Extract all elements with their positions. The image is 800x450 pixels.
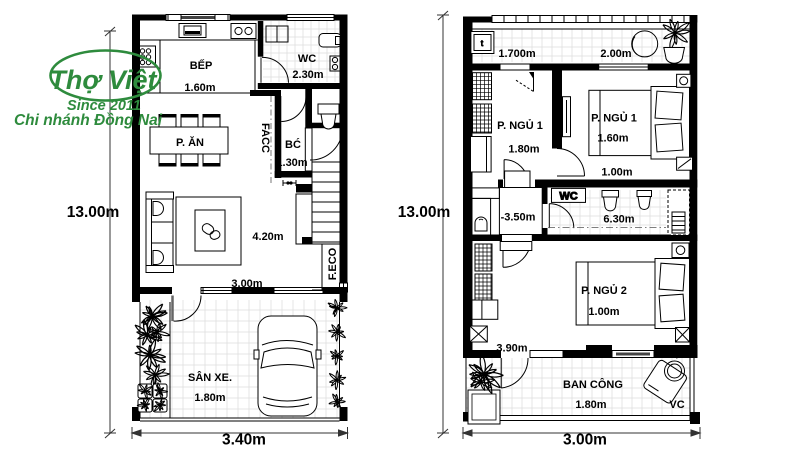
svg-text:Thợ Việt: Thợ Việt [49,65,157,95]
svg-text:1.60m: 1.60m [597,133,628,145]
svg-text:WC: WC [559,190,577,202]
svg-text:1.00m: 1.00m [601,167,632,179]
svg-text:P. ĂN: P. ĂN [176,136,204,149]
svg-text:F.ECO: F.ECO [327,247,339,280]
svg-text:6.30m: 6.30m [603,214,634,226]
svg-text:BĆ: BĆ [285,138,301,151]
svg-text:1.30m: 1.30m [276,157,307,169]
svg-text:WC: WC [298,53,316,65]
svg-text:SÂN XE.: SÂN XE. [188,371,232,384]
svg-text:1.700m: 1.700m [498,48,536,60]
svg-text:-3.50m: -3.50m [501,212,536,224]
svg-text:BAN CÔNG: BAN CÔNG [563,378,623,391]
svg-text:2.30m: 2.30m [292,69,323,81]
svg-text:P. NGỦ 1: P. NGỦ 1 [591,112,637,125]
svg-text:3.40m: 3.40m [222,432,266,449]
svg-text:P. NGỦ 2: P. NGỦ 2 [581,284,627,297]
svg-text:FACC: FACC [259,123,271,153]
svg-text:1.80m: 1.80m [194,392,225,404]
svg-text:Chi nhánh Đồng Nai: Chi nhánh Đồng Nai [14,112,163,129]
svg-text:2.00m: 2.00m [600,48,631,60]
svg-text:1.00m: 1.00m [588,306,619,318]
svg-text:3.90m: 3.90m [496,343,527,355]
svg-text:3.00m: 3.00m [563,432,607,449]
svg-text:13.00m: 13.00m [398,204,451,221]
svg-text:1.80m: 1.80m [508,144,539,156]
svg-text:VC: VC [669,399,684,411]
svg-text:BẾP: BẾP [190,59,213,72]
svg-text:3.00m: 3.00m [231,278,262,290]
svg-text:P. NGỦ 1: P. NGỦ 1 [497,119,543,132]
svg-text:13.00m: 13.00m [67,204,120,221]
svg-text:1.80m: 1.80m [575,399,606,411]
svg-text:1.60m: 1.60m [184,82,215,94]
svg-text:4.20m: 4.20m [252,231,283,243]
